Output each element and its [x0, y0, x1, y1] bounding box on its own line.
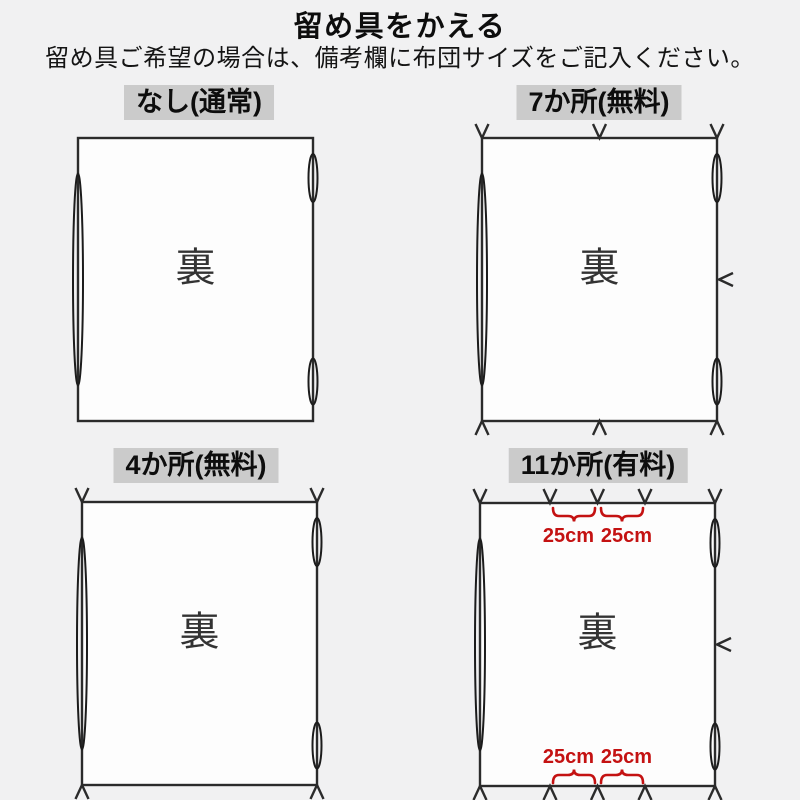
back-label: 裏: [176, 246, 216, 290]
back-label: 裏: [180, 610, 220, 654]
dimension-label-top-1: 25cm: [543, 525, 594, 547]
panel-label-seven: 7か所(無料): [517, 85, 682, 120]
fastener-mark-bottom-right: [711, 421, 724, 435]
back-label: 裏: [580, 246, 620, 290]
fastener-mark-top-left: [476, 124, 489, 138]
diagram-none: 裏: [58, 118, 348, 448]
back-label: 裏: [578, 611, 618, 655]
diagram-four: 裏: [62, 482, 352, 800]
fastener-mark-top-left: [76, 488, 89, 502]
dimension-label-bottom-2: 25cm: [601, 746, 652, 768]
panel-label-four: 4か所(無料): [114, 448, 279, 483]
panel-label-none: なし(通常): [124, 85, 274, 120]
fastener-mark-bottom-right: [311, 785, 324, 799]
fastener-mark-bottom-mid1: [544, 786, 557, 800]
fastener-options-infographic: 留め具をかえる 留め具ご希望の場合は、備考欄に布団サイズをご記入ください。 なし…: [0, 0, 800, 800]
fastener-mark-bottom-left: [76, 785, 89, 799]
fastener-mark-bottom-right: [709, 786, 722, 800]
fastener-mark-top-left: [474, 489, 487, 503]
fastener-mark-top-right: [709, 489, 722, 503]
diagram-seven: 裏: [462, 118, 752, 448]
fastener-mark-bottom-center: [593, 421, 606, 435]
fastener-mark-top-right: [711, 124, 724, 138]
fastener-mark-top-center: [591, 489, 604, 503]
fastener-mark-right-center: [717, 638, 731, 651]
panel-label-eleven: 11か所(有料): [509, 448, 688, 483]
fastener-mark-top-center: [593, 124, 606, 138]
page-subtitle: 留め具ご希望の場合は、備考欄に布団サイズをご記入ください。: [0, 38, 800, 73]
fastener-mark-top-mid2: [639, 489, 652, 503]
fastener-mark-top-right: [311, 488, 324, 502]
fastener-mark-bottom-center: [591, 786, 604, 800]
diagram-eleven: 25cm 25cm 25cm 25cm 裏: [460, 483, 750, 800]
fastener-mark-bottom-left: [476, 421, 489, 435]
dimension-label-bottom-1: 25cm: [543, 746, 594, 768]
fastener-mark-bottom-left: [474, 786, 487, 800]
dimension-label-top-2: 25cm: [601, 525, 652, 547]
fastener-mark-bottom-mid2: [639, 786, 652, 800]
fastener-mark-top-mid1: [544, 489, 557, 503]
fastener-mark-right-center: [719, 273, 733, 286]
